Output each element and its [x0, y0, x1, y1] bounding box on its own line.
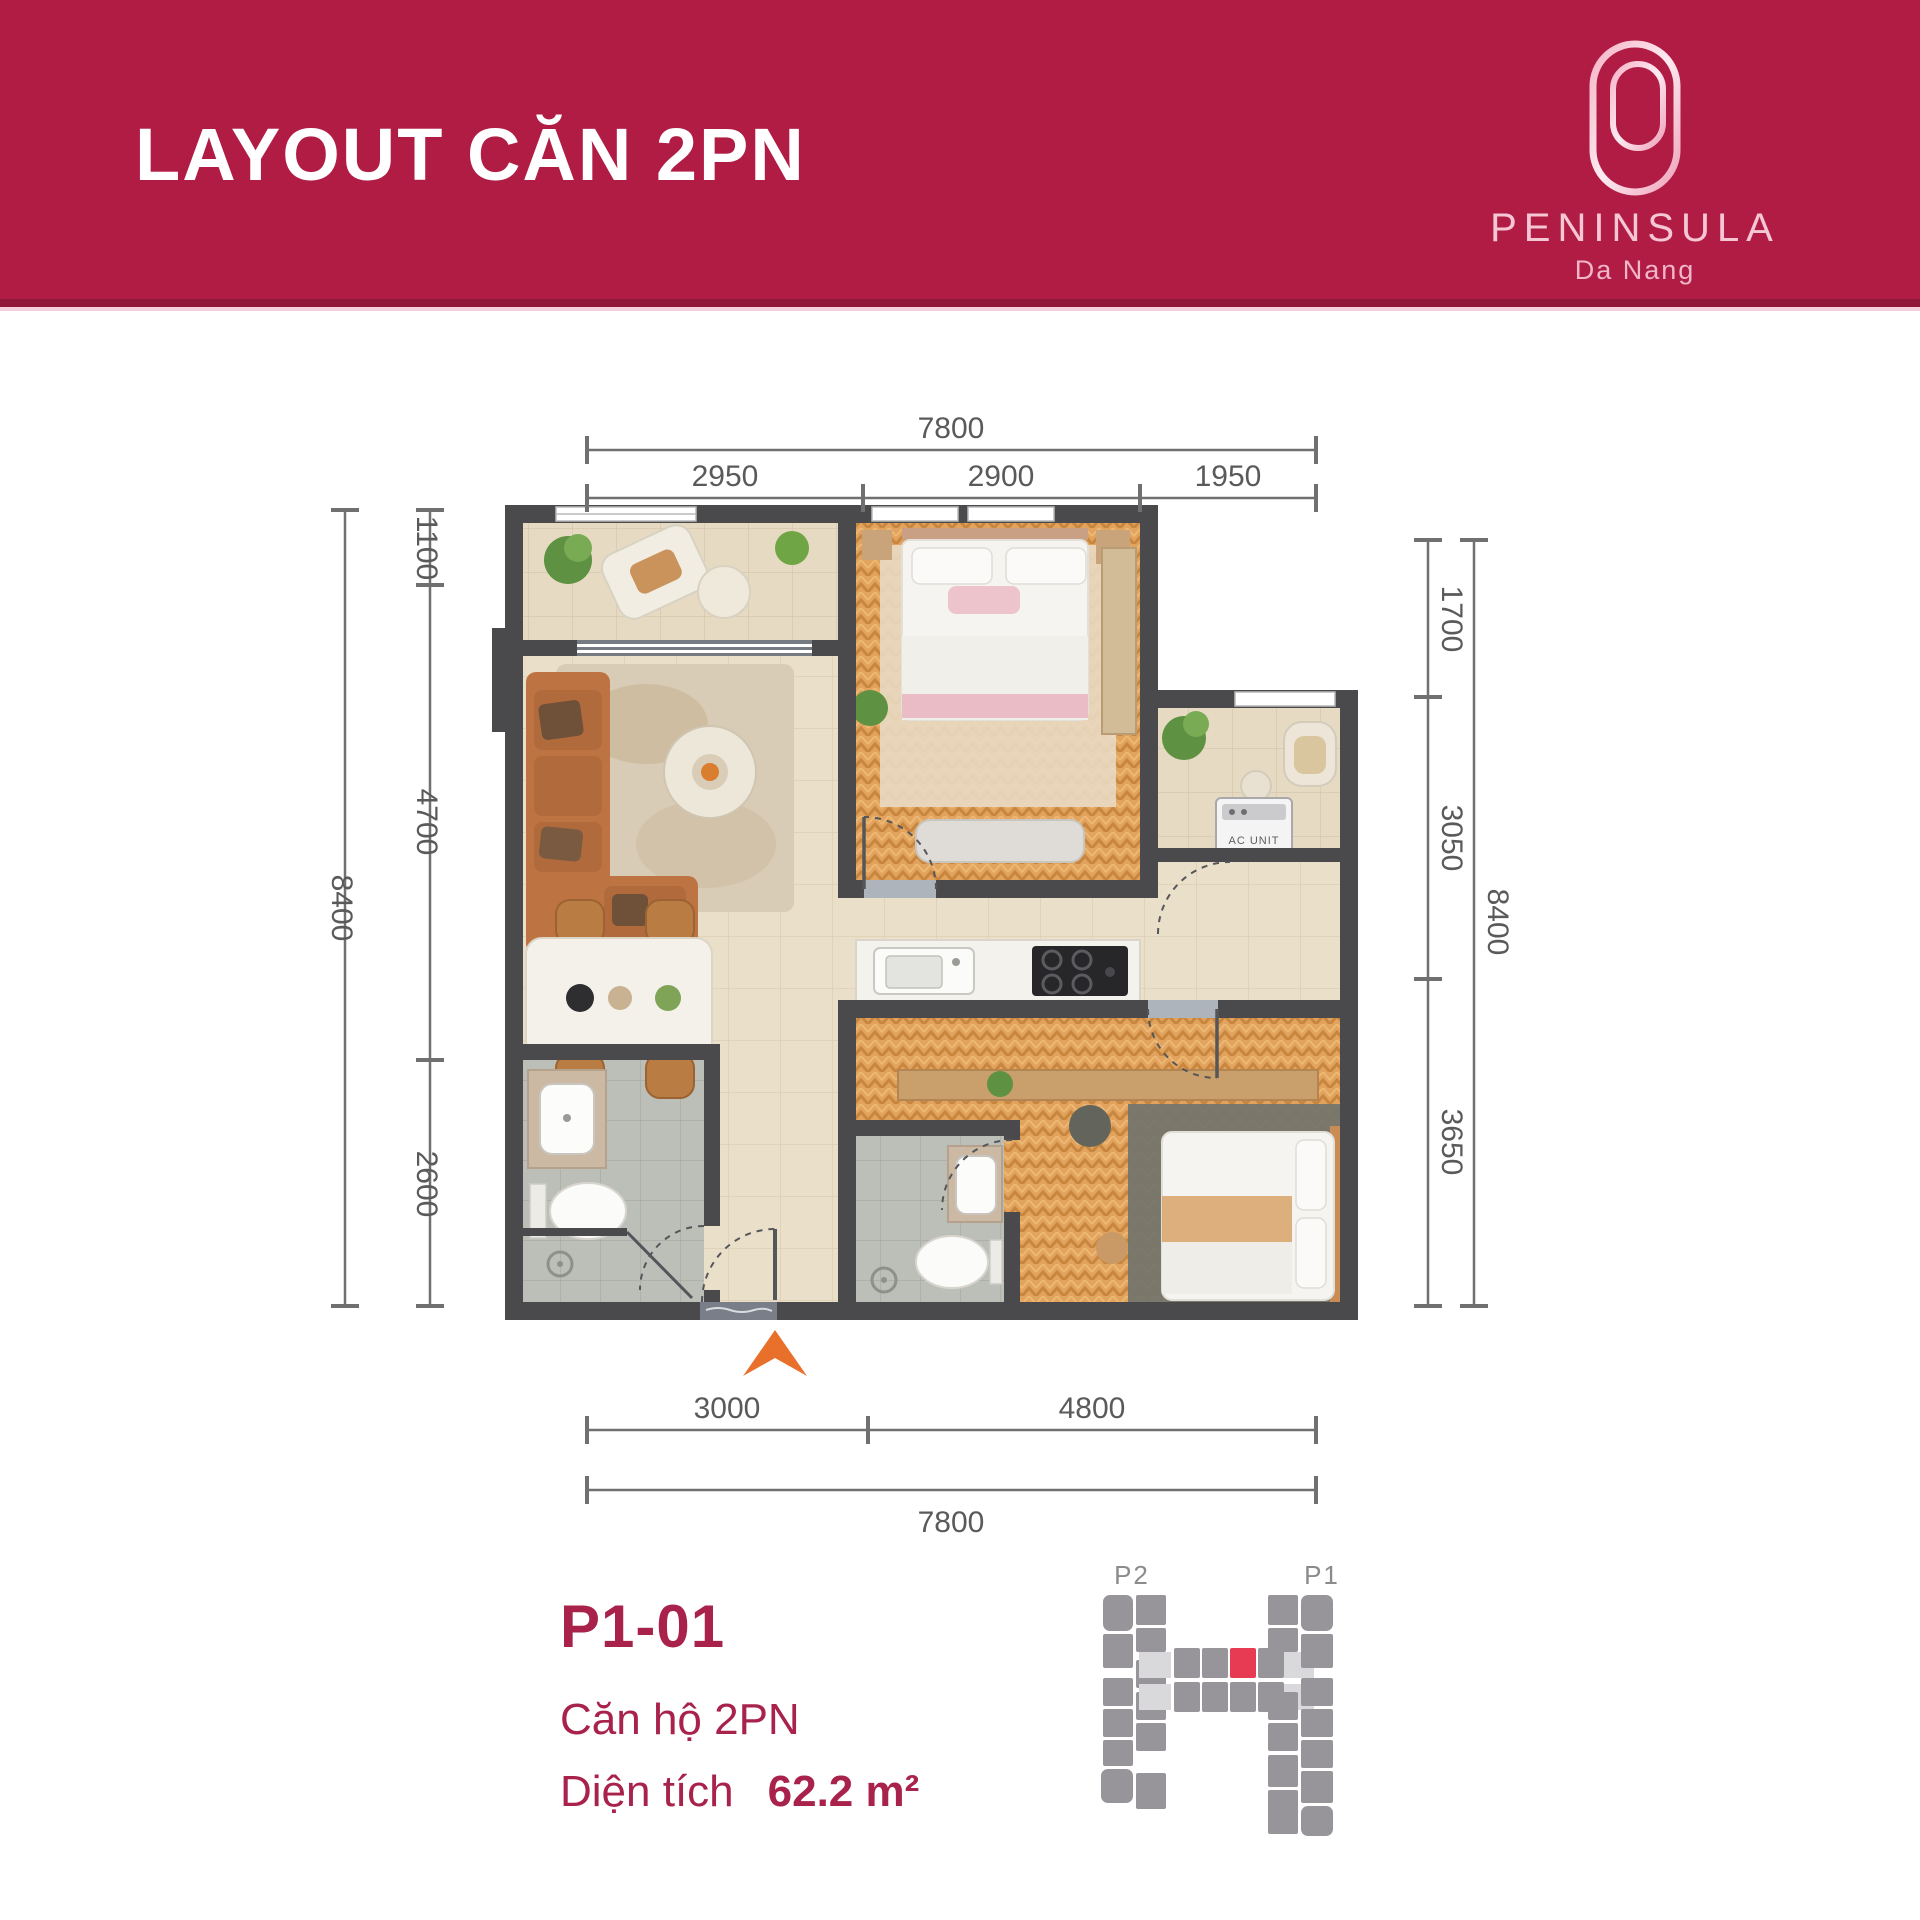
unit-info: P1-01 Căn hộ 2PN Diện tích 62.2 m² [560, 1592, 919, 1817]
pillow [1006, 548, 1086, 584]
unit-area-label: Diện tích [560, 1767, 734, 1817]
dim-top-overall: 7800 [918, 412, 985, 445]
dim-left-seg1: 1100 [410, 516, 443, 581]
dim-bottom-overall: 7800 [918, 1506, 985, 1539]
pillow [1296, 1218, 1326, 1288]
side-table [1241, 771, 1271, 801]
dim-left-seg2: 4700 [410, 789, 443, 856]
key-plan-blocks [1101, 1595, 1333, 1836]
dim-right-seg1: 1700 [1435, 586, 1468, 653]
stool [1096, 1232, 1128, 1264]
ac-unit-label: AC UNIT [1229, 835, 1280, 847]
unit-type: Căn hộ 2PN [560, 1695, 919, 1745]
dim-top-seg1: 2950 [692, 460, 759, 493]
bed1-throw [902, 694, 1088, 718]
ac-unit: AC UNIT [1216, 798, 1292, 852]
dim-bottom-seg2: 4800 [1059, 1392, 1126, 1425]
entrance-arrow-icon [743, 1330, 807, 1376]
basin [956, 1156, 996, 1214]
dim-left-seg3: 2600 [410, 1151, 443, 1218]
unit-area: Diện tích 62.2 m² [560, 1767, 919, 1817]
dining-chair [646, 1054, 694, 1098]
desk-chair [1069, 1105, 1111, 1147]
dim-top-seg2: 2900 [968, 460, 1035, 493]
unit-code: P1-01 [560, 1592, 919, 1661]
dim-bottom-seg1: 3000 [694, 1392, 761, 1425]
dim-top-seg3: 1950 [1195, 460, 1262, 493]
toilet [916, 1236, 988, 1288]
nightstand [862, 530, 892, 560]
bed-bench [916, 820, 1084, 862]
dim-right-seg2: 3050 [1435, 805, 1468, 872]
dim-left-overall: 8400 [325, 875, 358, 942]
pillow [1296, 1140, 1326, 1210]
plant [852, 690, 888, 726]
floor-plan-canvas: AC UNIT [0, 0, 1920, 1920]
key-plan-label-p1: P1 [1304, 1560, 1340, 1590]
pillow [912, 548, 992, 584]
key-plan-highlighted-unit [1230, 1648, 1256, 1678]
side-table [698, 566, 750, 618]
unit-area-value: 62.2 m² [768, 1767, 920, 1817]
plant [1183, 711, 1209, 737]
key-plan-label-p2: P2 [1114, 1560, 1150, 1590]
bed2-blanket [1162, 1196, 1292, 1242]
dim-right-seg3: 3650 [1435, 1109, 1468, 1176]
bed1-headboard [902, 528, 1088, 540]
dim-right-overall: 8400 [1481, 889, 1514, 956]
plant [564, 534, 592, 562]
pillow-pink [948, 586, 1020, 614]
wardrobe [1102, 548, 1136, 734]
plant [987, 1071, 1013, 1097]
key-plan: P2 P1 [1101, 1560, 1340, 1836]
bedroom2-desk [898, 1070, 1318, 1100]
plant [775, 531, 809, 565]
